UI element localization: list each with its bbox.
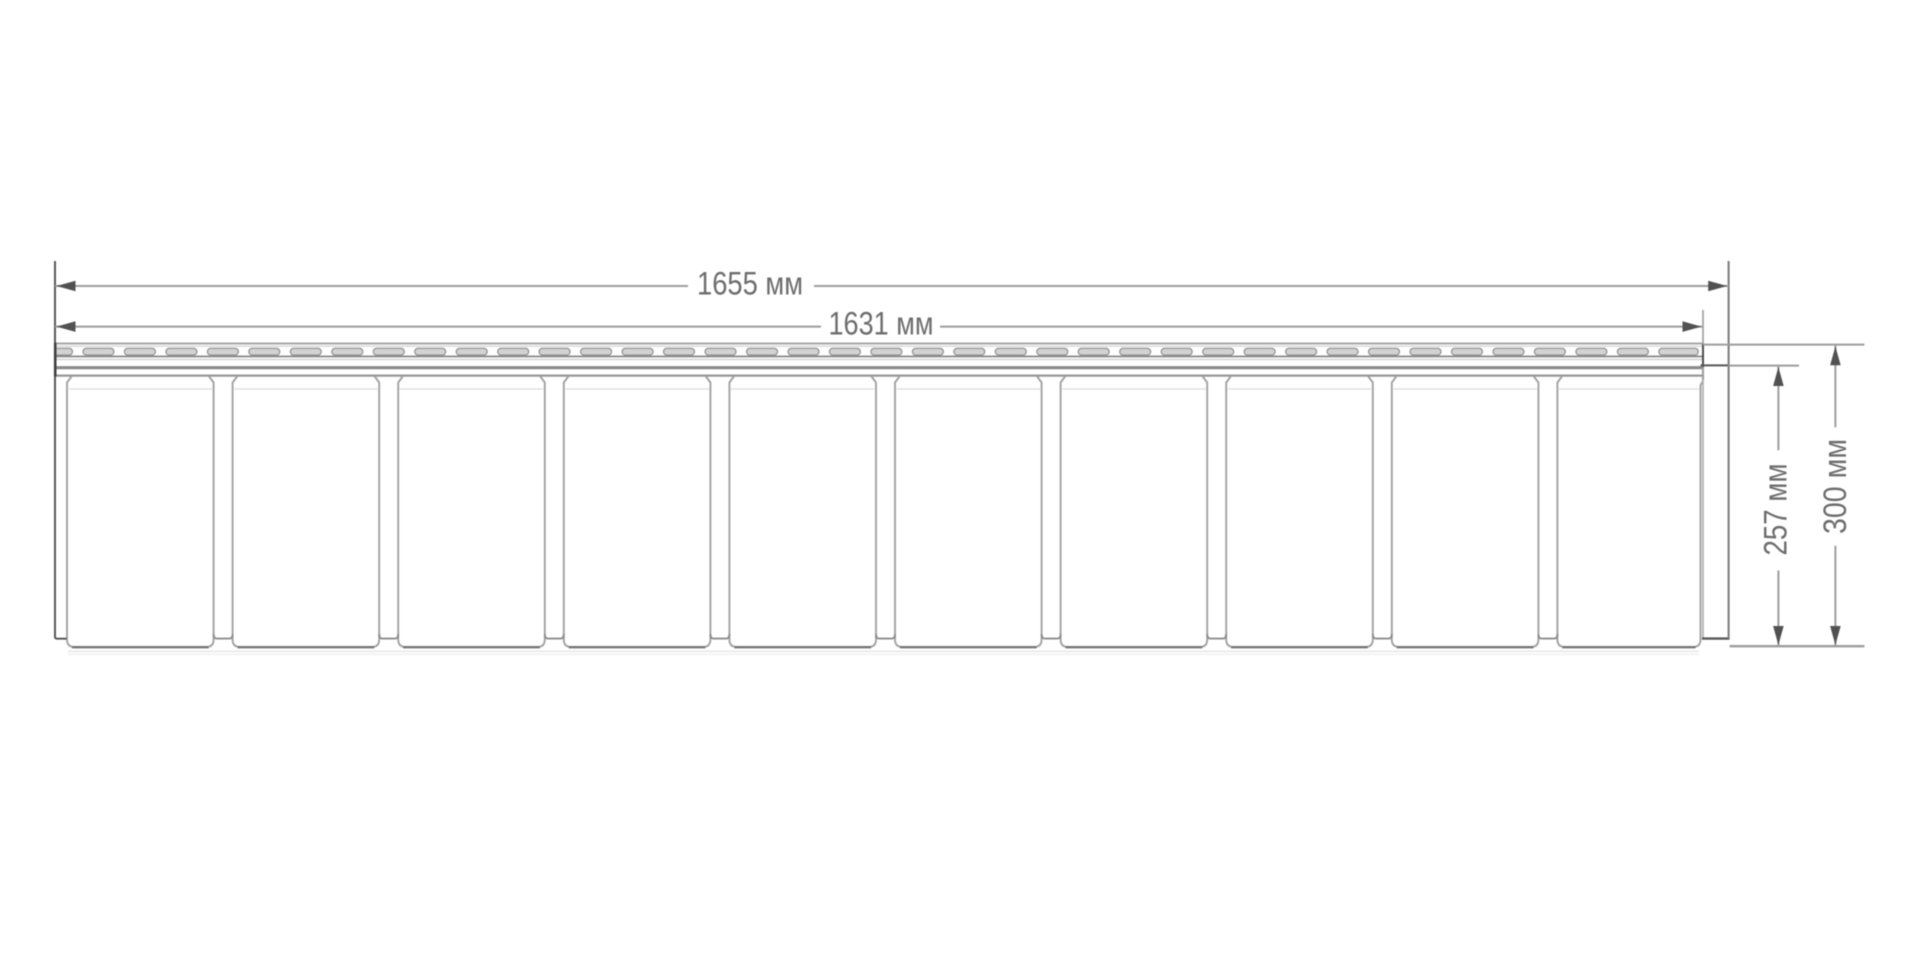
svg-text:257 мм: 257 мм <box>1758 464 1794 556</box>
svg-text:300 мм: 300 мм <box>1817 439 1853 534</box>
svg-text:1655 мм: 1655 мм <box>697 266 803 302</box>
svg-text:1631 мм: 1631 мм <box>829 306 934 342</box>
